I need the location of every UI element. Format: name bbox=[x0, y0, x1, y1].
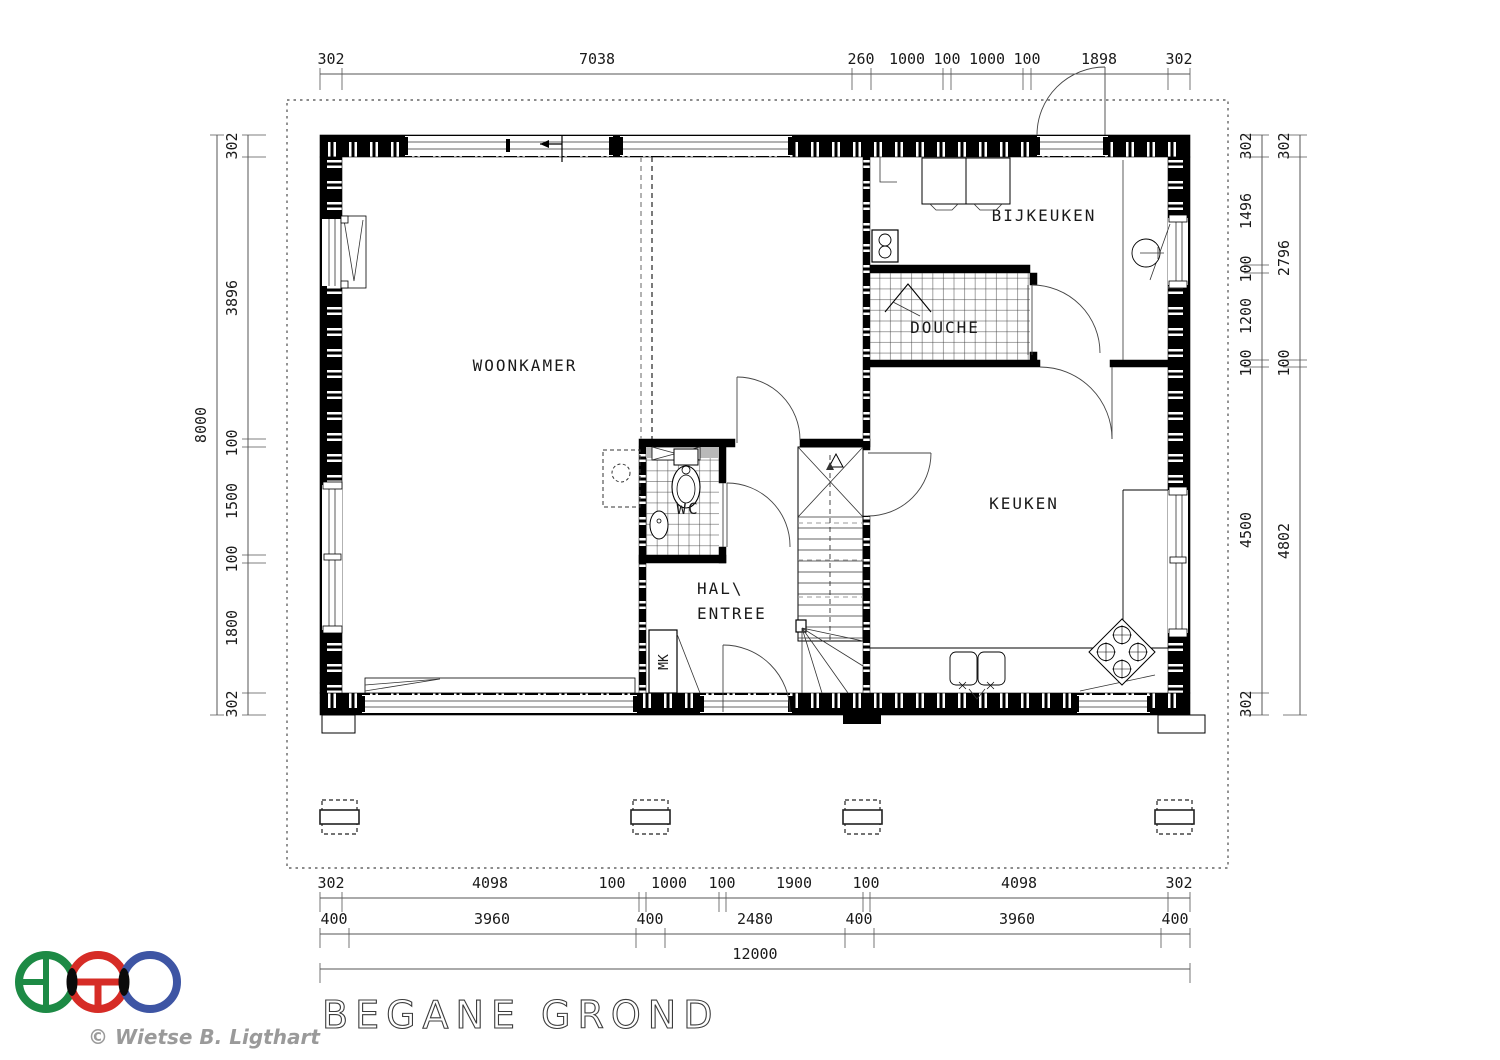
floorplan-drawing: WOONKAMER BIJKEUKEN DOUCHE KEUKEN WC HAL… bbox=[0, 0, 1500, 1060]
dim-b2-5: 3960 bbox=[999, 910, 1035, 928]
dim-top-4: 100 bbox=[933, 50, 960, 68]
dim-top-8: 302 bbox=[1165, 50, 1192, 68]
dim-right-in-4: 100 bbox=[1237, 349, 1255, 376]
window-left-top bbox=[322, 216, 366, 288]
room-label-douche: DOUCHE bbox=[910, 318, 980, 337]
dim-right-out-3: 4802 bbox=[1275, 523, 1293, 559]
room-label-keuken: KEUKEN bbox=[989, 494, 1059, 513]
room-label-mk: MK bbox=[657, 654, 672, 670]
dim-left-0: 302 bbox=[223, 132, 241, 159]
wc-door bbox=[723, 483, 790, 547]
dim-left: 8000 302 3896 100 1500 100 1800 302 bbox=[192, 132, 266, 717]
dim-left-4: 100 bbox=[223, 545, 241, 572]
room-label-bijkeuken: BIJKEUKEN bbox=[992, 206, 1097, 225]
dim-bottom-total: 12000 bbox=[320, 945, 1190, 983]
dim-b1-0: 302 bbox=[317, 874, 344, 892]
room-label-hal-2: ENTREE bbox=[697, 604, 767, 623]
window-left-bottom bbox=[322, 482, 342, 633]
dim-top-5: 1000 bbox=[969, 50, 1005, 68]
flue-reservation bbox=[603, 450, 640, 507]
dim-b1-1: 4098 bbox=[472, 874, 508, 892]
dim-left-6: 302 bbox=[223, 690, 241, 717]
douche-door bbox=[1028, 285, 1100, 355]
dim-b2-6: 400 bbox=[1161, 910, 1188, 928]
dim-b3-total: 12000 bbox=[732, 945, 777, 963]
dim-left-1: 3896 bbox=[223, 280, 241, 316]
dim-bottom-1: 302 4098 100 1000 100 1900 100 4098 302 bbox=[317, 874, 1192, 912]
washer-icon bbox=[922, 158, 966, 204]
dim-top-7: 1898 bbox=[1081, 50, 1117, 68]
room-label-hal-1: HAL\ bbox=[697, 579, 744, 598]
dim-top-0: 302 bbox=[317, 50, 344, 68]
dim-right-in-0: 302 bbox=[1237, 132, 1255, 159]
room-label-wc: WC bbox=[676, 499, 699, 518]
dryer-icon bbox=[966, 158, 1010, 204]
dim-top-3: 1000 bbox=[889, 50, 925, 68]
dim-right: 302 1496 100 1200 100 4500 302 302 2796 … bbox=[1237, 132, 1307, 717]
keuken-fixtures bbox=[870, 490, 1168, 699]
dim-top-6: 100 bbox=[1013, 50, 1040, 68]
floorplan-page: WOONKAMER BIJKEUKEN DOUCHE KEUKEN WC HAL… bbox=[0, 0, 1500, 1060]
logo-lens-right bbox=[119, 968, 130, 996]
copyright-text: © Wietse B. Ligthart bbox=[88, 1025, 321, 1049]
dim-right-out-2: 100 bbox=[1275, 349, 1293, 376]
dim-b1-4: 100 bbox=[708, 874, 735, 892]
window-right-bottom bbox=[1168, 487, 1188, 637]
sink-basin-left bbox=[950, 652, 977, 685]
dim-right-in-3: 1200 bbox=[1237, 298, 1255, 334]
stairs bbox=[796, 447, 863, 693]
sliding-door-bottom bbox=[360, 678, 638, 713]
dim-b2-1: 3960 bbox=[474, 910, 510, 928]
logo-circle-blue bbox=[123, 955, 177, 1009]
veranda-piers bbox=[320, 800, 1194, 834]
dim-right-in-1: 1496 bbox=[1237, 193, 1255, 229]
keuken-door bbox=[868, 453, 931, 516]
dim-b2-4: 400 bbox=[845, 910, 872, 928]
dim-b2-0: 400 bbox=[320, 910, 347, 928]
hall-door bbox=[737, 377, 800, 443]
dim-top-1: 7038 bbox=[579, 50, 615, 68]
dim-b2-2: 400 bbox=[636, 910, 663, 928]
dim-right-in-6: 302 bbox=[1237, 690, 1255, 717]
dim-right-out-0: 302 bbox=[1275, 132, 1293, 159]
dim-b1-5: 1900 bbox=[776, 874, 812, 892]
room-label-woonkamer: WOONKAMER bbox=[473, 356, 578, 375]
window-top-2 bbox=[618, 136, 793, 156]
cooktop-icon bbox=[1089, 619, 1155, 685]
dim-b1-6: 100 bbox=[852, 874, 879, 892]
douche-room bbox=[870, 273, 1030, 360]
dim-left-2: 100 bbox=[223, 429, 241, 456]
dim-b1-2: 100 bbox=[598, 874, 625, 892]
dim-top: 302 7038 260 1000 100 1000 100 1898 302 bbox=[317, 50, 1192, 90]
dim-bottom-2: 400 3960 400 2480 400 3960 400 bbox=[320, 910, 1190, 948]
window-top-1 bbox=[403, 136, 614, 156]
dim-left-5: 1800 bbox=[223, 610, 241, 646]
dim-b1-3: 1000 bbox=[651, 874, 687, 892]
newel-post bbox=[796, 620, 806, 632]
sink-basin-right bbox=[978, 652, 1005, 685]
back-door bbox=[1035, 67, 1108, 156]
dim-b2-3: 2480 bbox=[737, 910, 773, 928]
dim-b1-7: 4098 bbox=[1001, 874, 1037, 892]
dim-left-3: 1500 bbox=[223, 483, 241, 519]
dim-b1-8: 302 bbox=[1165, 874, 1192, 892]
architect-logo bbox=[19, 955, 177, 1009]
dim-right-out-1: 2796 bbox=[1275, 240, 1293, 276]
hand-basin-icon bbox=[650, 511, 668, 539]
dim-right-in-2: 100 bbox=[1237, 255, 1255, 282]
bijkeuken-door bbox=[1040, 367, 1112, 439]
logo-lens-left bbox=[67, 968, 78, 996]
drawing-title: BEGANE GROND bbox=[322, 993, 719, 1037]
dim-top-2: 260 bbox=[847, 50, 874, 68]
front-door bbox=[698, 645, 794, 713]
dim-right-in-5: 4500 bbox=[1237, 512, 1255, 548]
dim-left-outer: 8000 bbox=[192, 407, 210, 443]
